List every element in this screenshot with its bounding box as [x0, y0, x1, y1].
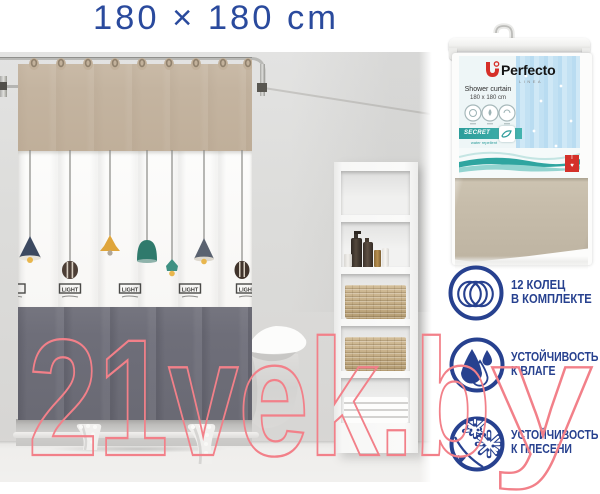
svg-text:LIGHT: LIGHT [62, 288, 79, 294]
svg-text:LIGHT: LIGHT [239, 288, 252, 294]
svg-text:LIGHT: LIGHT [182, 288, 199, 294]
svg-text:LIGHT: LIGHT [122, 288, 139, 294]
